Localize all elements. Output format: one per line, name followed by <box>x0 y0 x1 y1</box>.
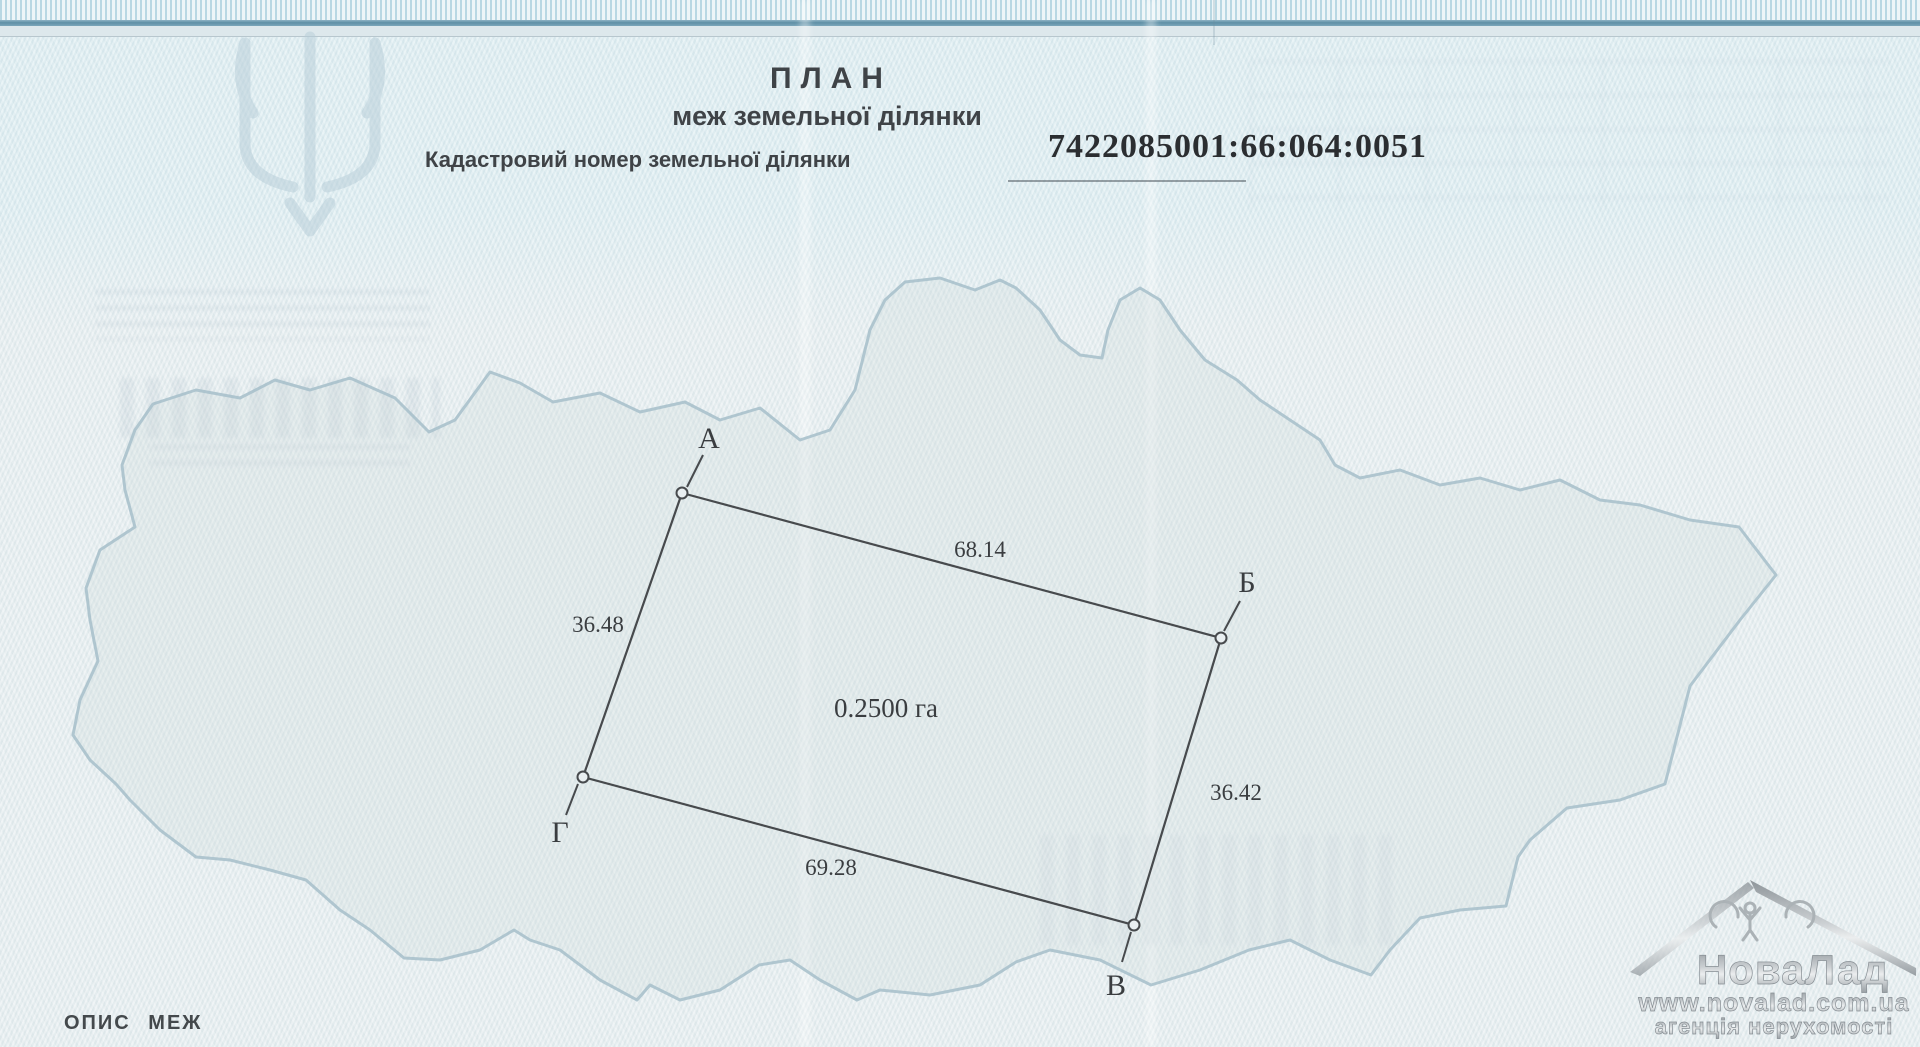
plot-area-label: 0.2500 га <box>834 693 938 723</box>
page-subtitle: меж земельної ділянки <box>672 101 982 132</box>
side-length-GA: 36.48 <box>572 612 624 637</box>
vertex-marker-B <box>1216 633 1227 644</box>
side-length-VG: 69.28 <box>805 855 857 880</box>
watermark-site: www.novalad.com.ua <box>1637 989 1909 1017</box>
watermark-brand: НоваЛад <box>1697 946 1889 993</box>
vertex-marker-V <box>1129 920 1140 931</box>
ukraine-map-outline <box>73 278 1776 1000</box>
vertex-label-B: Б <box>1238 566 1255 599</box>
page-title: ПЛАН <box>770 62 892 96</box>
vertex-label-A: А <box>698 422 720 455</box>
cadastral-number-underline <box>1008 180 1246 182</box>
vertex-marker-G <box>578 772 589 783</box>
scanned-cadastral-plan-page: { "document": { "title": "ПЛАН", "subtit… <box>0 0 1920 1047</box>
borders-description-heading: ОПИС МЕЖ <box>64 1012 202 1035</box>
watermark-tagline: агенція нерухомості <box>1655 1014 1894 1039</box>
vertex-label-V: В <box>1106 969 1126 1002</box>
novalad-watermark: НоваЛад www.novalad.com.ua агенція нерух… <box>1628 872 1920 1047</box>
cadastral-number-label: Кадастровий номер земельної ділянки <box>425 147 851 173</box>
vertex-label-G: Г <box>551 816 568 849</box>
cadastral-number-value: 7422085001:66:064:0051 <box>1048 128 1427 166</box>
vertex-marker-A <box>677 488 688 499</box>
side-length-BV: 36.42 <box>1210 780 1262 805</box>
side-length-AB: 68.14 <box>954 537 1006 562</box>
